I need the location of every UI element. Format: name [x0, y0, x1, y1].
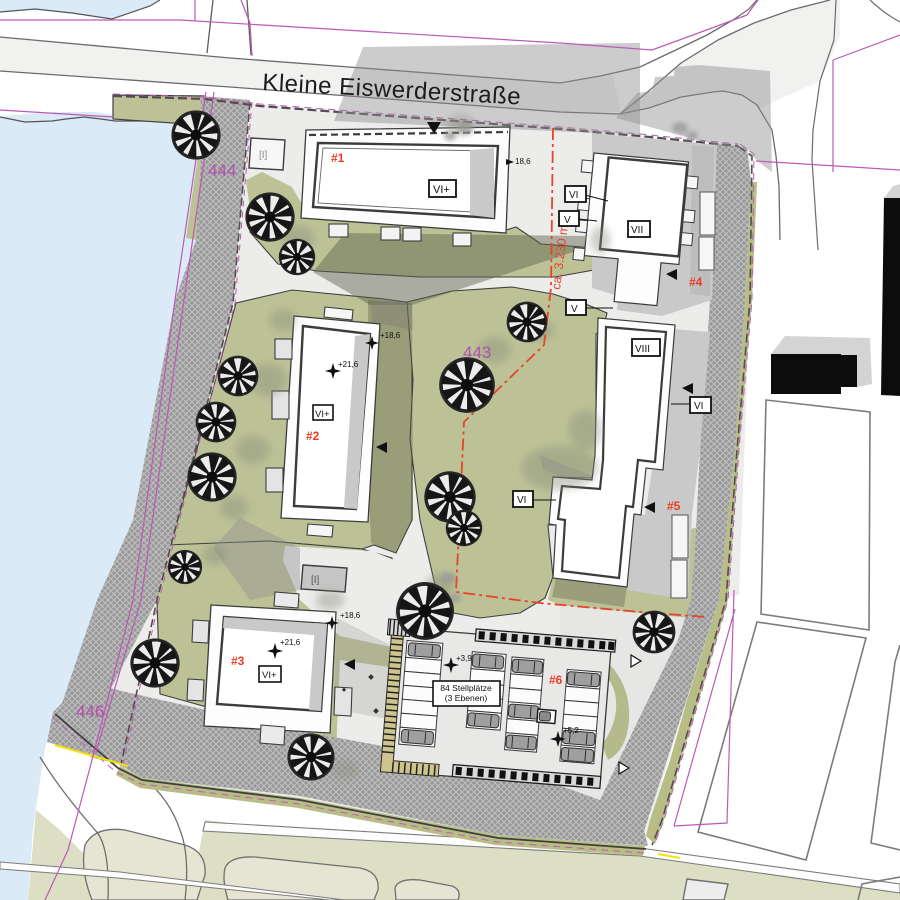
- svg-text:#2: #2: [306, 429, 320, 443]
- svg-text:#5: #5: [667, 499, 681, 513]
- svg-text:VI+: VI+: [315, 409, 330, 420]
- svg-text:#3: #3: [231, 654, 245, 668]
- svg-text:V: V: [564, 215, 571, 226]
- svg-text:VII: VII: [631, 225, 643, 236]
- svg-text:VI: VI: [517, 495, 526, 506]
- svg-text:VI: VI: [569, 190, 578, 201]
- svg-text:+18,6: +18,6: [340, 611, 361, 620]
- svg-text:VI+: VI+: [262, 670, 277, 681]
- svg-text:(3 Ebenen): (3 Ebenen): [445, 693, 488, 703]
- svg-text:+3,9: +3,9: [456, 654, 472, 663]
- svg-text:+21,6: +21,6: [280, 638, 301, 647]
- svg-text:#4: #4: [689, 275, 703, 289]
- svg-text:[I]: [I]: [259, 150, 268, 161]
- svg-text:[I]: [I]: [311, 575, 320, 586]
- svg-text:84 Stellplätze: 84 Stellplätze: [440, 683, 492, 693]
- svg-text:#6: #6: [549, 673, 563, 687]
- svg-text:#1: #1: [331, 151, 345, 165]
- svg-text:443: 443: [463, 343, 491, 362]
- svg-text:18,6: 18,6: [515, 157, 531, 166]
- svg-text:VI: VI: [694, 401, 703, 412]
- svg-text:+18,6: +18,6: [380, 331, 401, 340]
- svg-text:446: 446: [76, 702, 104, 721]
- svg-text:VI+: VI+: [433, 184, 450, 196]
- svg-text:444: 444: [208, 161, 236, 180]
- svg-text:V: V: [571, 304, 578, 315]
- svg-text:+21,6: +21,6: [338, 360, 359, 369]
- svg-text:VIII: VIII: [635, 344, 650, 355]
- svg-text:+5,2: +5,2: [563, 726, 579, 735]
